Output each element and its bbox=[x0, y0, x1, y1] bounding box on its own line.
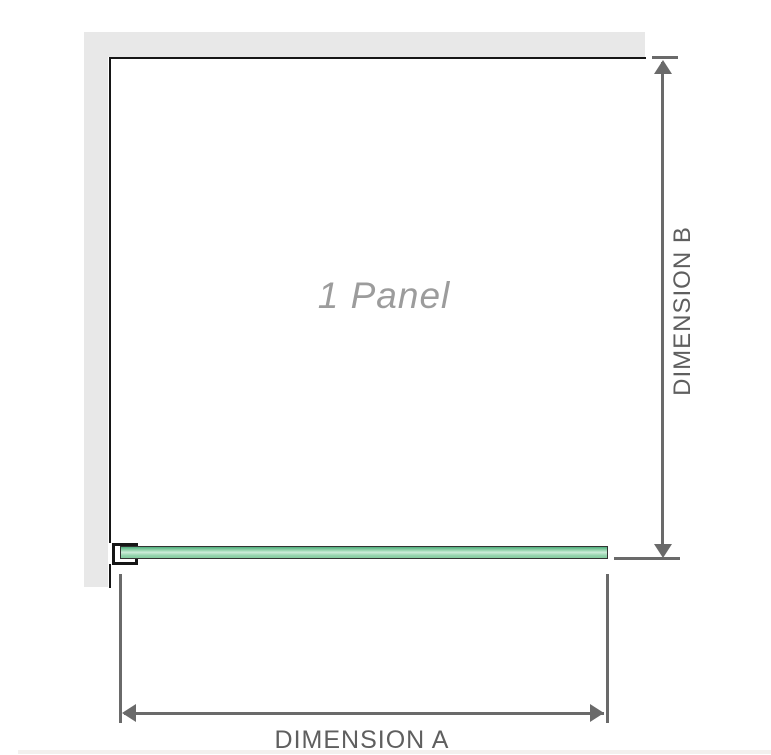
dimension-a-line bbox=[124, 712, 604, 715]
wall-left bbox=[84, 32, 108, 587]
panel-left-edge bbox=[109, 57, 111, 543]
panel-top-edge bbox=[109, 57, 646, 59]
glass-panel bbox=[120, 546, 608, 559]
wall-top bbox=[84, 32, 645, 57]
dimension-b-label: DIMENSION B bbox=[669, 226, 697, 396]
panel-label: 1 Panel bbox=[318, 275, 451, 317]
panel-left-edge-lower bbox=[109, 564, 111, 588]
dimension-a-left-extension bbox=[119, 574, 122, 723]
arrow-right-icon bbox=[590, 704, 604, 722]
bottom-divider bbox=[18, 750, 771, 754]
dimension-b-top-tick bbox=[652, 56, 678, 59]
arrow-down-icon bbox=[654, 544, 672, 558]
dimension-a-right-extension bbox=[606, 574, 609, 723]
dimension-b-line bbox=[661, 62, 664, 544]
panel-dimension-diagram: 1 Panel DIMENSION B DIMENSION A bbox=[0, 0, 771, 755]
dimension-b-bottom-tick bbox=[614, 557, 680, 560]
